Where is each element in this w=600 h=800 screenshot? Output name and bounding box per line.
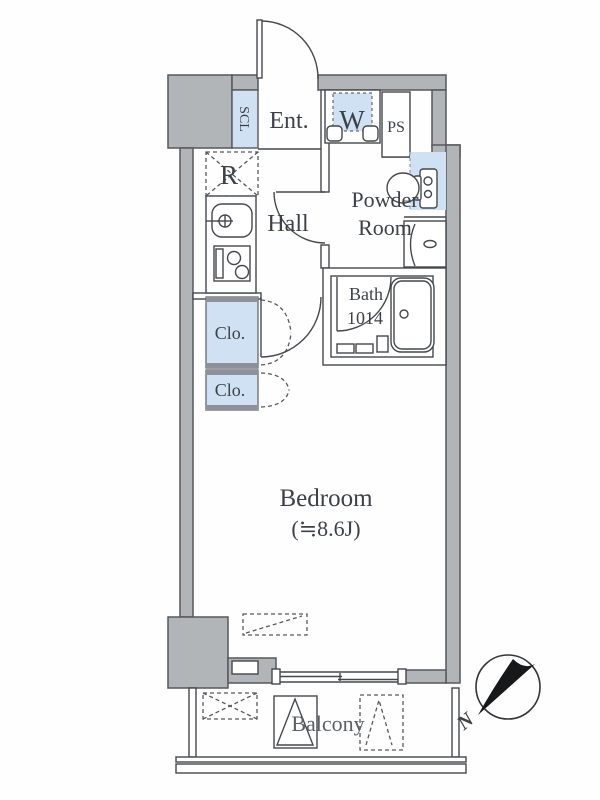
entrance-door bbox=[257, 20, 318, 79]
powder-room-label-2: Room bbox=[358, 215, 412, 240]
bathtub bbox=[391, 278, 434, 352]
bathroom: Bath 1014 bbox=[323, 268, 446, 365]
closet-upper-label: Clo. bbox=[215, 323, 246, 343]
bedroom-label: Bedroom bbox=[279, 485, 373, 512]
balcony-rail bbox=[176, 764, 466, 773]
compass-needle-icon bbox=[478, 659, 535, 715]
shoe-closet: SCL bbox=[232, 90, 258, 148]
balcony-window bbox=[272, 669, 406, 684]
refrigerator-label: R bbox=[220, 160, 238, 190]
bedroom-size-label: (≒8.6J) bbox=[291, 516, 360, 541]
compass: N bbox=[452, 655, 540, 735]
shoe-closet-label: SCL bbox=[236, 106, 251, 132]
balcony-label: Balcony bbox=[291, 711, 364, 736]
bath-counter bbox=[356, 344, 373, 353]
bath-stool bbox=[377, 336, 388, 352]
evacuation-hatch-outline bbox=[360, 695, 403, 750]
entrance-label: Ent. bbox=[269, 108, 308, 134]
refrigerator-space: R bbox=[206, 152, 258, 196]
bedroom-door bbox=[261, 297, 321, 357]
wall-niche bbox=[232, 661, 258, 674]
beam-outline bbox=[243, 614, 307, 635]
washer-label: W bbox=[339, 105, 365, 135]
closet-lower: Clo. bbox=[206, 370, 289, 410]
closet-upper: Clo. bbox=[206, 297, 291, 368]
floor-plan-page: SCL W PS R bbox=[0, 0, 600, 800]
pipe-space-label: PS bbox=[387, 119, 405, 136]
kitchen-counter bbox=[206, 196, 256, 293]
closet-lower-label: Clo. bbox=[215, 380, 246, 400]
washer-pan: W bbox=[325, 90, 380, 143]
balcony: Balcony bbox=[176, 688, 466, 773]
toilet-tank bbox=[420, 169, 437, 208]
bath-counter bbox=[337, 344, 354, 353]
stove-icon bbox=[214, 246, 250, 281]
floor-plan-canvas: SCL W PS R bbox=[0, 0, 600, 800]
powder-room-label-1: Powder bbox=[351, 187, 419, 212]
balcony-partition-left bbox=[189, 688, 196, 757]
ac-unit-outline bbox=[203, 693, 257, 719]
bath-size-label: 1014 bbox=[347, 308, 383, 328]
balcony-rail bbox=[176, 757, 466, 762]
hall-label: Hall bbox=[267, 211, 309, 237]
bath-label: Bath bbox=[349, 284, 383, 304]
pipe-space: PS bbox=[382, 92, 410, 157]
